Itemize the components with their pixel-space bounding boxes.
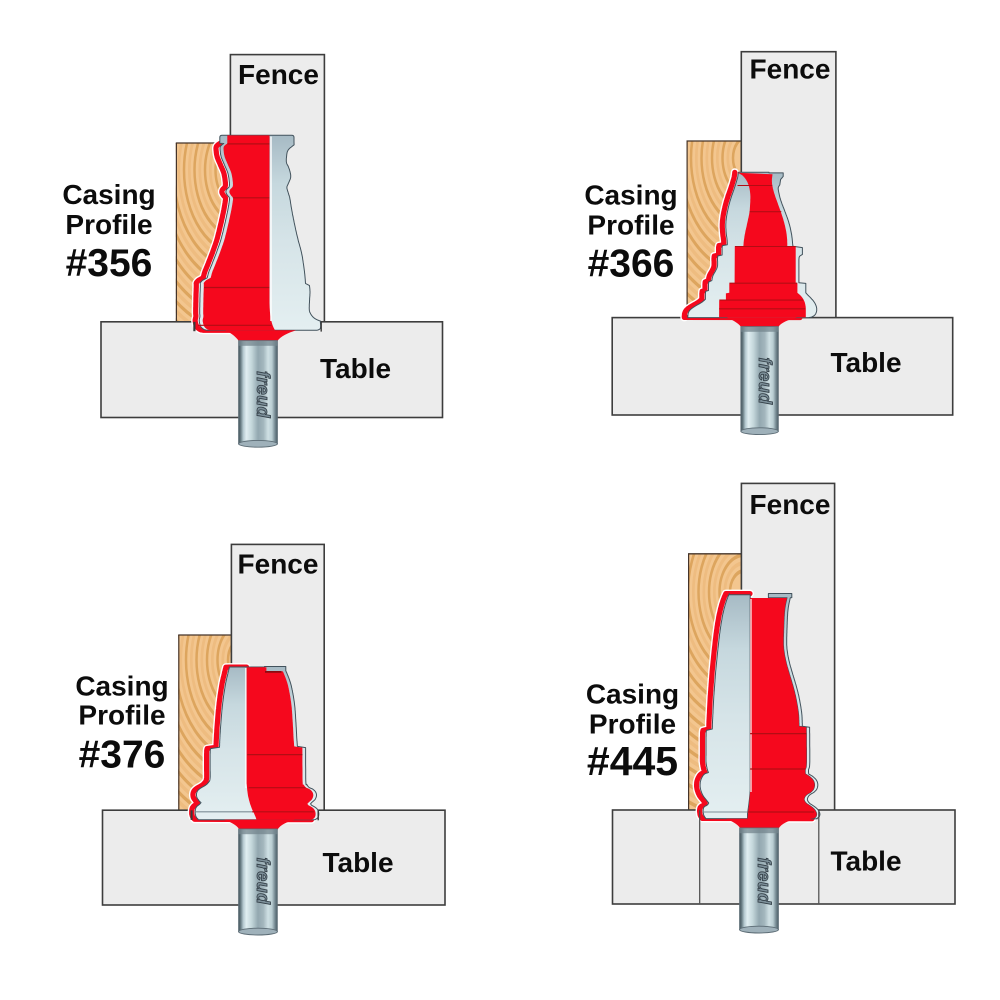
svg-text:Fence: Fence — [238, 549, 319, 580]
svg-text:freud: freud — [755, 358, 775, 406]
svg-text:Profile: Profile — [78, 700, 165, 731]
svg-text:Fence: Fence — [238, 59, 319, 90]
svg-text:Profile: Profile — [587, 209, 674, 240]
svg-text:Table: Table — [322, 847, 393, 878]
svg-text:freud: freud — [253, 858, 273, 906]
svg-text:Table: Table — [320, 353, 391, 384]
svg-text:Profile: Profile — [65, 209, 152, 240]
svg-text:Casing: Casing — [75, 671, 168, 702]
svg-text:freud: freud — [253, 371, 273, 419]
svg-text:Profile: Profile — [589, 709, 676, 740]
svg-text:Fence: Fence — [750, 53, 831, 84]
svg-text:freud: freud — [754, 858, 774, 906]
svg-text:#376: #376 — [79, 734, 166, 777]
svg-text:Table: Table — [830, 846, 901, 877]
svg-text:Casing: Casing — [586, 679, 679, 710]
svg-text:Table: Table — [830, 347, 901, 378]
svg-text:#366: #366 — [588, 242, 675, 285]
svg-text:#356: #356 — [66, 242, 153, 285]
svg-text:Fence: Fence — [750, 489, 831, 520]
svg-text:#445: #445 — [587, 738, 678, 784]
svg-text:Casing: Casing — [62, 179, 155, 210]
svg-text:Casing: Casing — [584, 180, 677, 211]
